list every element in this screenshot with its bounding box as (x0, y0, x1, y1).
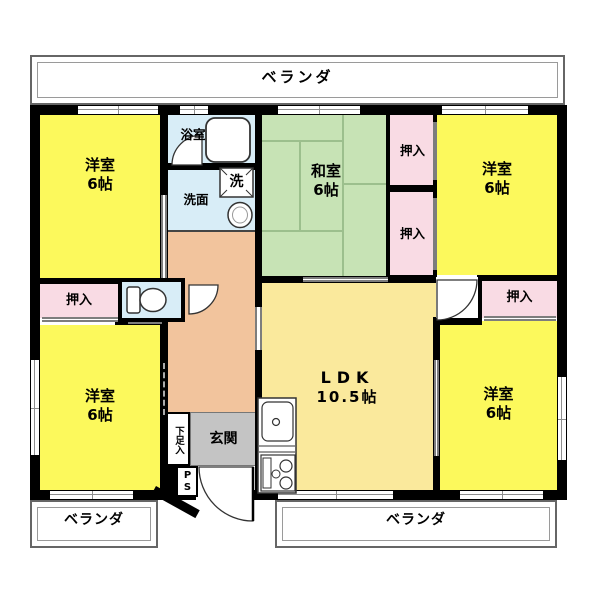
window (180, 106, 208, 114)
closet-label: 押入 (482, 290, 557, 307)
bath-label: 浴室 (170, 127, 216, 143)
floor-plan: ベランダ ベランダ ベランダ 洋室 6帖 和室 6帖 洋室 6帖 洋室 6帖 L… (0, 0, 600, 600)
entrance-wall-opening (196, 490, 254, 500)
room-size: 6帖 (40, 175, 160, 194)
wall (40, 278, 122, 284)
room-western-top-left (40, 115, 160, 280)
room-size: 6帖 (440, 404, 557, 423)
open-boundary (163, 363, 167, 415)
room-name: 洋室 (440, 385, 557, 404)
wall-thin (168, 230, 255, 232)
room-japanese-label: 和室 6帖 (262, 162, 390, 200)
room-toilet (118, 278, 185, 322)
sliding-door (303, 277, 388, 282)
washer-label: 洗 (220, 174, 253, 192)
window (31, 360, 39, 455)
wall (168, 163, 255, 170)
room-name: 洋室 (40, 387, 160, 406)
room-size: 6帖 (40, 406, 160, 425)
washroom-label: 洗面 (170, 192, 222, 208)
entrance-label: 玄関 (190, 431, 257, 449)
pipe-space-label: PS (179, 468, 195, 496)
veranda-br-label: ベランダ (275, 512, 557, 530)
tatami-line (262, 230, 343, 232)
window (278, 491, 393, 499)
window (50, 491, 133, 499)
window (278, 106, 360, 114)
sliding-door (434, 360, 439, 456)
room-size: 6帖 (437, 179, 557, 198)
tatami-line (262, 140, 343, 142)
wall (390, 185, 435, 192)
room-tl-label: 洋室 6帖 (40, 156, 160, 194)
shoe-cabinet-label: 下足入 (168, 415, 188, 465)
wall (433, 317, 482, 325)
sliding-door (161, 195, 167, 278)
veranda-bl-label: ベランダ (30, 512, 158, 530)
closet-label: 押入 (40, 293, 118, 310)
window (442, 106, 528, 114)
room-size: 6帖 (262, 181, 390, 200)
window (558, 377, 566, 460)
doorway-opening (255, 307, 262, 350)
wall (386, 275, 437, 283)
wall (477, 275, 557, 281)
closet-label: 押入 (390, 143, 435, 159)
room-ldk-corner (430, 283, 482, 317)
sliding-door (42, 317, 118, 322)
window (78, 106, 158, 114)
room-name: 洋室 (437, 160, 557, 179)
veranda-top-label: ベランダ (30, 68, 565, 87)
room-name: 和室 (262, 162, 390, 181)
room-ldk-label: LDK 10.5帖 (262, 368, 433, 408)
room-bl-label: 洋室 6帖 (40, 387, 160, 425)
closet-label: 押入 (390, 226, 435, 242)
room-size: 10.5帖 (262, 388, 433, 407)
room-tr-label: 洋室 6帖 (437, 160, 557, 198)
window (460, 491, 543, 499)
sliding-door (484, 316, 556, 321)
room-name: 洋室 (40, 156, 160, 175)
room-name: LDK (262, 368, 433, 388)
room-br-label: 洋室 6帖 (440, 385, 557, 423)
